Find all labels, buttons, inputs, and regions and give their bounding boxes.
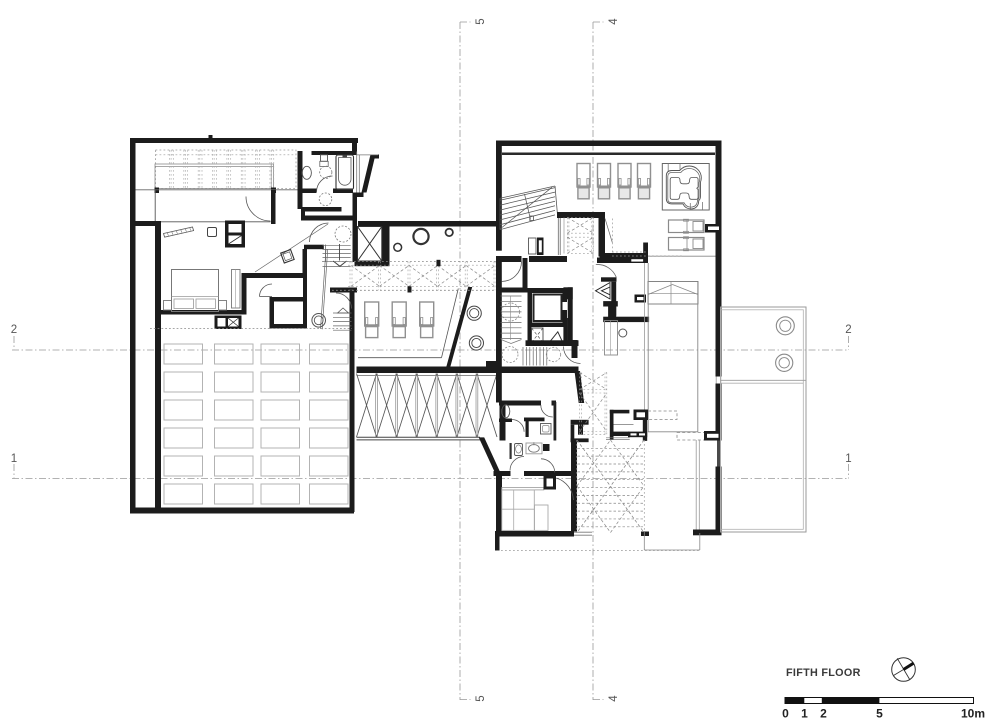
svg-text:FIFTH FLOOR: FIFTH FLOOR (786, 667, 861, 679)
svg-text:10m: 10m (961, 707, 985, 721)
svg-text:5: 5 (475, 18, 487, 24)
svg-text:5: 5 (876, 707, 883, 721)
svg-text:2: 2 (845, 324, 851, 336)
svg-text:2: 2 (11, 324, 17, 336)
svg-text:4: 4 (608, 18, 620, 25)
svg-text:1: 1 (801, 707, 808, 721)
svg-text:4: 4 (608, 695, 620, 702)
svg-text:5: 5 (475, 695, 487, 701)
svg-text:1: 1 (845, 453, 851, 465)
svg-text:2: 2 (820, 707, 827, 721)
svg-text:0: 0 (782, 707, 789, 721)
svg-text:1: 1 (11, 453, 17, 465)
